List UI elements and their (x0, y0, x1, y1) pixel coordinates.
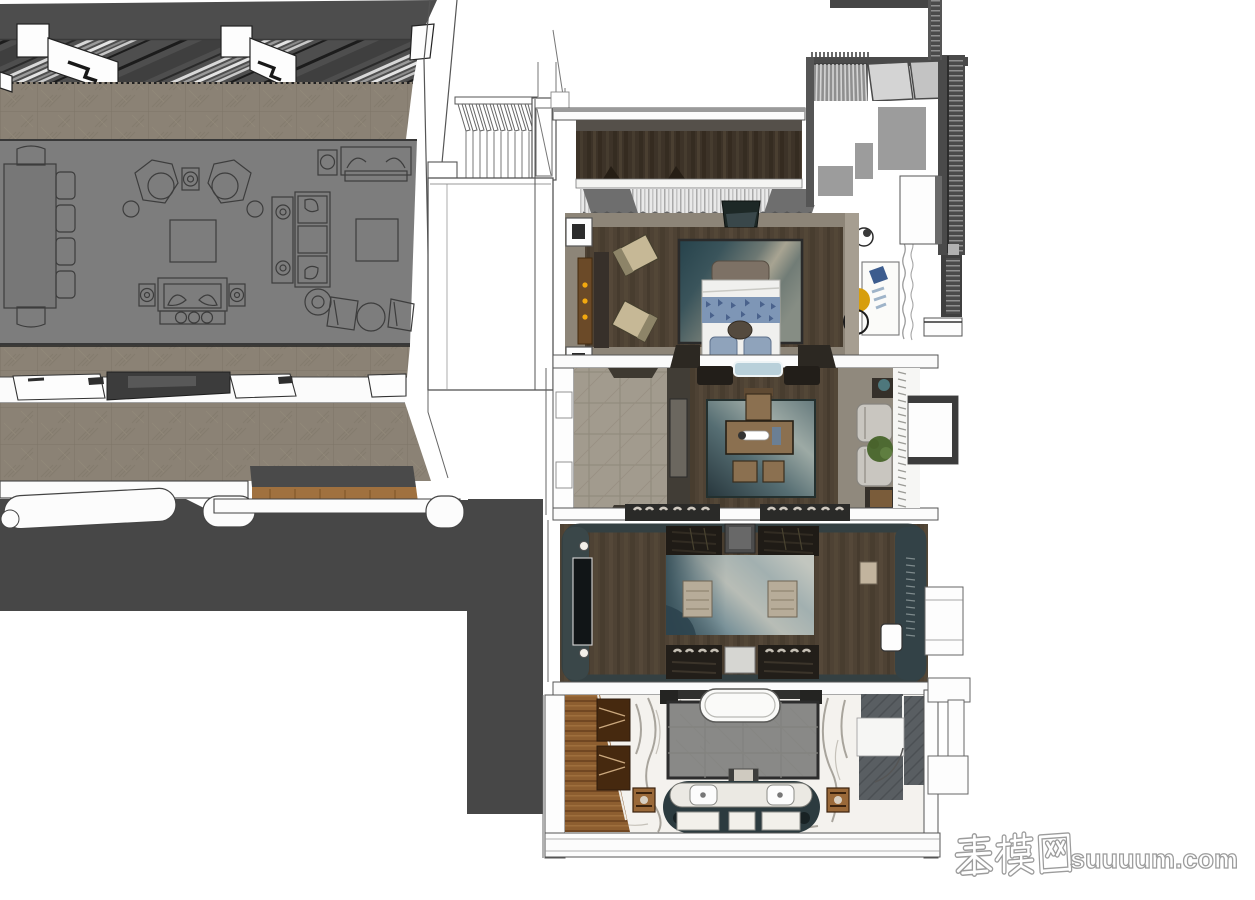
svg-text:suuuum.com: suuuum.com (1070, 844, 1238, 874)
